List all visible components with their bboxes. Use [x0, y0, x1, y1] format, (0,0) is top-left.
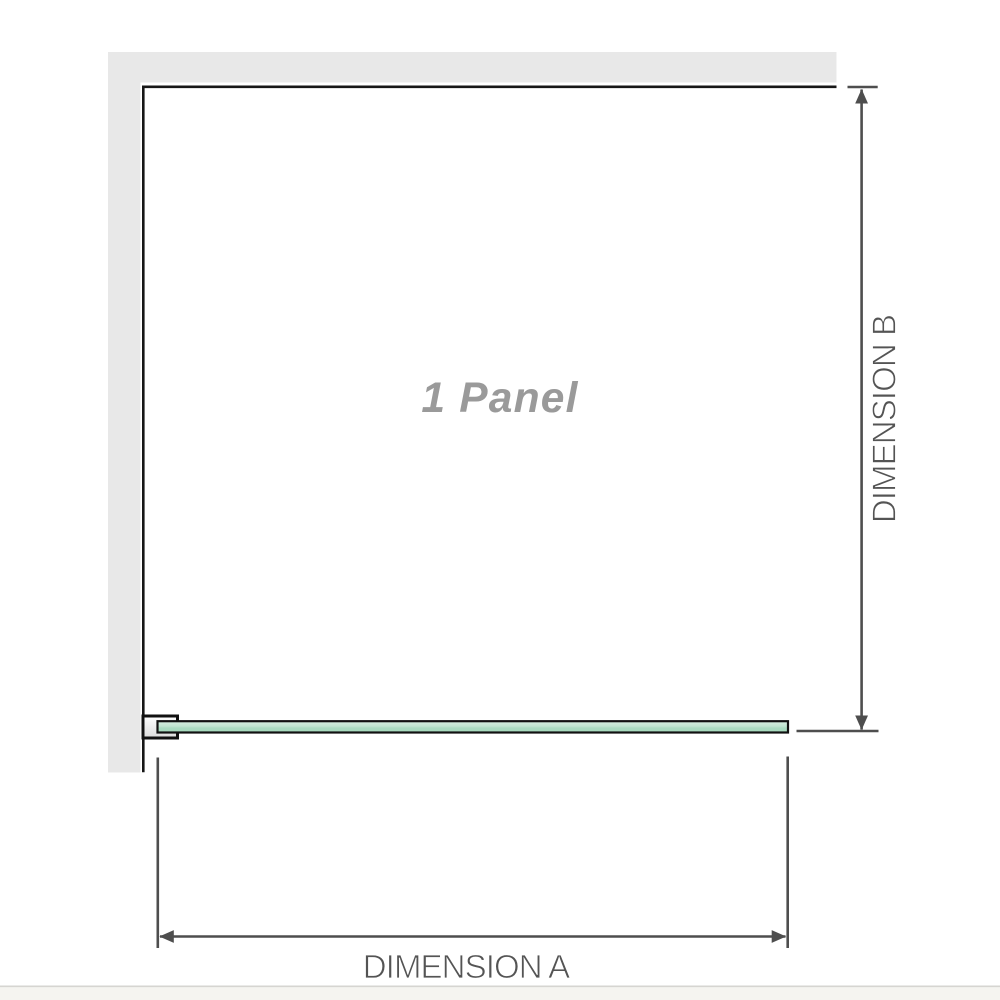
svg-text:1 Panel: 1 Panel — [421, 375, 578, 422]
svg-text:DIMENSION B: DIMENSION B — [866, 315, 903, 523]
svg-text:DIMENSION A: DIMENSION A — [363, 948, 570, 985]
